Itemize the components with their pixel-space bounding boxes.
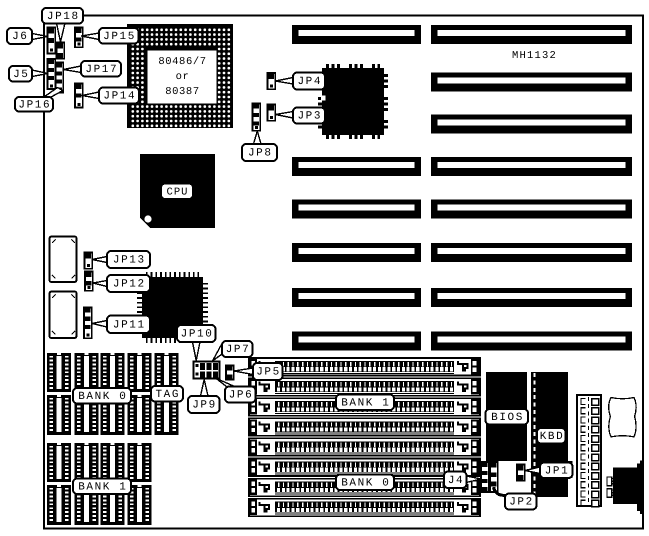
svg-text:BANK 0: BANK 0 [78, 391, 127, 403]
svg-text:J5: J5 [13, 69, 29, 81]
svg-text:80486/7: 80486/7 [158, 56, 206, 68]
svg-text:JP7: JP7 [226, 344, 251, 356]
svg-text:BIOS: BIOS [491, 412, 524, 424]
svg-text:JP9: JP9 [192, 400, 217, 412]
svg-text:BANK 1: BANK 1 [341, 397, 390, 409]
svg-text:or: or [176, 71, 190, 83]
svg-text:JP2: JP2 [509, 497, 534, 509]
svg-text:JP3: JP3 [297, 111, 322, 123]
svg-text:JP18: JP18 [47, 11, 80, 23]
svg-text:CPU: CPU [167, 187, 189, 199]
svg-text:J4: J4 [448, 475, 464, 487]
svg-text:BANK 0: BANK 0 [341, 477, 390, 489]
svg-text:BANK 1: BANK 1 [78, 481, 127, 493]
svg-text:KBD: KBD [540, 431, 565, 443]
svg-text:JP17: JP17 [85, 64, 118, 76]
svg-text:JP10: JP10 [181, 329, 214, 341]
svg-text:JP11: JP11 [113, 319, 146, 331]
svg-text:MH1132: MH1132 [512, 50, 557, 62]
svg-text:JP12: JP12 [113, 279, 146, 291]
svg-text:JP1: JP1 [545, 465, 570, 477]
svg-text:J6: J6 [12, 31, 28, 43]
svg-text:JP15: JP15 [103, 31, 136, 43]
svg-text:JP5: JP5 [256, 367, 281, 379]
svg-text:JP6: JP6 [229, 390, 254, 402]
svg-text:80387: 80387 [165, 86, 200, 98]
svg-text:JP13: JP13 [113, 255, 146, 267]
svg-text:JP4: JP4 [297, 76, 322, 88]
svg-text:JP16: JP16 [18, 99, 51, 111]
svg-text:JP8: JP8 [248, 148, 273, 160]
svg-text:TAG: TAG [155, 389, 180, 401]
svg-text:JP14: JP14 [103, 91, 136, 103]
